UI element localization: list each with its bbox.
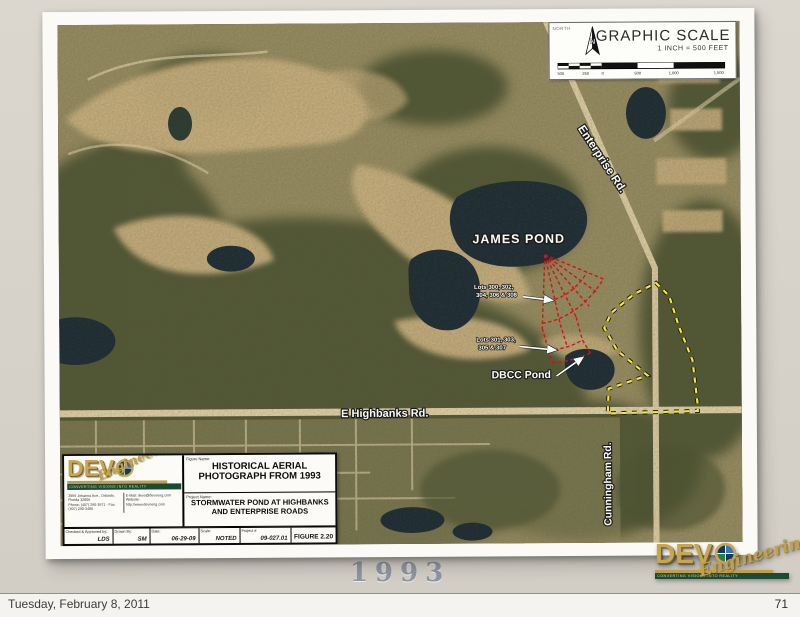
scale-bar: 500 250 0 500 1,000 1,500 [558, 62, 728, 77]
date-cell: Date: 06-29-09 [150, 528, 199, 543]
title-block-fields: Checked & Approved by: LDS Drawn By: SM … [64, 526, 335, 544]
project-name: STORMWATER POND AT HIGHBANKS AND ENTERPR… [186, 499, 333, 517]
highbanks-road-label: E Highbanks Rd. [341, 408, 428, 420]
scale-label: Scale: [200, 529, 211, 533]
cunningham-road-label: Cunningham Rd. [603, 442, 615, 526]
photo-frame: JAMES POND Lots 300, 302, 304, 306 & 308… [42, 8, 757, 559]
graphic-scale-title: GRAPHIC SCALE [596, 27, 731, 45]
scale-value: NOTED [216, 536, 237, 542]
drawn-by-value: SM [138, 537, 147, 543]
graphic-scale-box: NORTH N GRAPHIC SCALE 1 INCH = 500 FEET [548, 21, 736, 80]
checked-by-cell: Checked & Approved by: LDS [64, 529, 113, 544]
aerial-photograph: JAMES POND Lots 300, 302, 304, 306 & 308… [57, 21, 742, 546]
drawn-by-cell: Drawn By: SM [113, 529, 150, 544]
drawn-by-label: Drawn By: [114, 530, 132, 534]
graphic-scale-ratio: 1 INCH = 500 FEET [658, 45, 729, 52]
figure-number-cell: FIGURE 2.20 [291, 527, 335, 542]
james-pond-label: JAMES POND [472, 232, 565, 247]
scale-cell: Scale: NOTED [199, 528, 240, 543]
address-line: 3959 Johanna Ave., Orlando, Florida 3280… [68, 494, 121, 503]
north-tag: NORTH [552, 26, 570, 31]
address-col-left: 3959 Johanna Ave., Orlando, Florida 3280… [66, 493, 123, 513]
figure-name: HISTORICAL AERIAL PHOTOGRAPH FROM 1993 [186, 461, 333, 482]
lots-odd-label-line1: Lots 301, 303, [476, 337, 516, 343]
project-number-cell: Project # 09-027.01 [240, 528, 291, 543]
address-col-right: E-Mail: devo@devoeng.com Website: http:/… [123, 492, 181, 512]
lots-even-label-line2: 304, 306 & 308 [476, 293, 518, 299]
scale-tick: 500 [558, 71, 565, 76]
devo-logo-titleblock: DEV CONVERTING VISIONS INTO REALITY Engi… [64, 455, 184, 527]
scale-tick: 250 [582, 71, 589, 76]
date-value: 06-29-09 [172, 536, 196, 542]
dbcc-pond-label: DBCC Pond [492, 370, 551, 381]
title-block-names: Figure Name: HISTORICAL AERIAL PHOTOGRAP… [184, 454, 335, 526]
checked-by-label: Checked & Approved by: [65, 530, 107, 534]
date-label: Date: [151, 529, 160, 533]
svg-text:N: N [590, 37, 595, 46]
scale-tick: 1,500 [714, 70, 725, 75]
scale-tick: 0 [602, 71, 605, 76]
figure-name-cell: Figure Name: HISTORICAL AERIAL PHOTOGRAP… [184, 454, 335, 493]
scale-tick: 500 [634, 71, 641, 76]
lots-odd-label-line2: 305 & 307 [478, 345, 506, 351]
figure-name-label: Figure Name: [186, 456, 210, 461]
devo-logo-slide: DEV CONVERTING VISIONS INTO REALITY Engi… [655, 540, 797, 592]
checked-by-value: LDS [98, 537, 110, 543]
logo-bar-green: CONVERTING VISIONS INTO REALITY [67, 483, 181, 490]
lots-even-label-line1: Lots 300, 302, [474, 285, 514, 291]
logo-address: 3959 Johanna Ave., Orlando, Florida 3280… [66, 492, 180, 513]
project-number-label: Project # [241, 529, 256, 533]
project-number-value: 09-027.01 [261, 536, 288, 542]
title-block: DEV CONVERTING VISIONS INTO REALITY Engi… [62, 452, 338, 546]
slide-canvas: JAMES POND Lots 300, 302, 304, 306 & 308… [0, 0, 800, 593]
project-name-cell: Project Name: STORMWATER POND AT HIGHBAN… [184, 493, 335, 526]
address-line: Website: http://www.devoeng.com [126, 498, 179, 507]
figure-number: FIGURE 2.20 [292, 533, 336, 540]
title-block-top: DEV CONVERTING VISIONS INTO REALITY Engi… [64, 454, 335, 528]
footer-date: Tuesday, February 8, 2011 [8, 597, 150, 611]
footer-page-number: 71 [775, 597, 788, 611]
address-line: Phone: (407) 290-3971 - Fax: (407) 290-3… [68, 503, 121, 512]
project-name-label: Project Name: [186, 495, 211, 500]
presenter-footer: Tuesday, February 8, 2011 71 [0, 593, 800, 617]
scale-tick: 1,000 [669, 70, 680, 75]
